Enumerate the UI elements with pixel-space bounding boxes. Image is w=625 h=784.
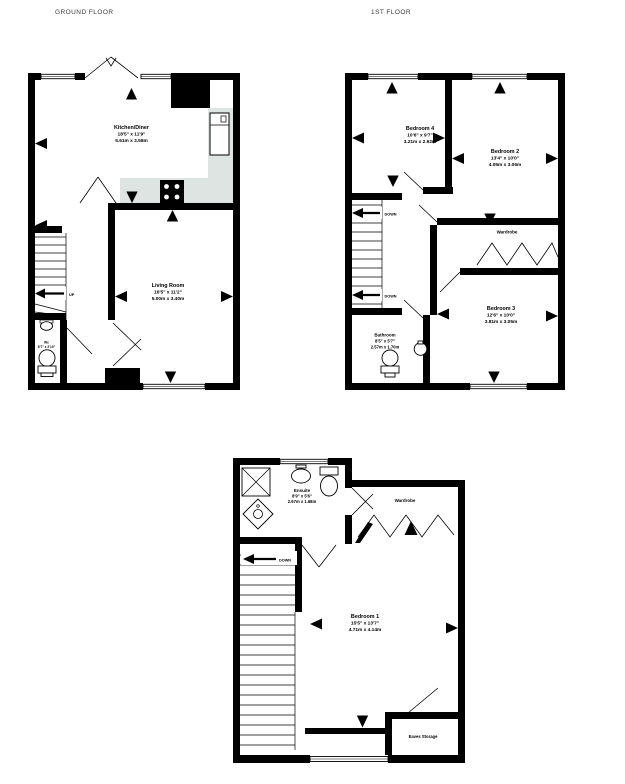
stairs: DOWN DOWN: [352, 200, 397, 308]
bedroom3-dims-m: 3.81m x 3.05m: [485, 319, 518, 325]
window: [41, 73, 75, 80]
window: [141, 73, 171, 80]
bedroom1-label: Bedroom 1: [351, 614, 379, 620]
dimension-arrow-down: [488, 372, 499, 384]
ensuite-fixtures: [242, 465, 338, 529]
dimension-arrows-second: [310, 521, 458, 728]
dimension-arrow-down: [357, 716, 368, 728]
stairs-down-label: DOWN: [279, 558, 291, 562]
dimension-arrow-right: [546, 153, 558, 164]
wc-room: Wc 6'7" x 2'10": [38, 320, 56, 377]
dimension-arrow-right: [221, 291, 233, 302]
dimension-arrow-right: [446, 623, 458, 634]
dimension-arrow-left: [115, 291, 127, 302]
door-leaf-icon: [355, 522, 373, 543]
ensuite-dims-ft: 8'9" x 5'6": [292, 494, 312, 499]
bathroom-dims-ft: 8'5" x 5'7": [375, 339, 395, 344]
stairs-up-label: UP: [69, 293, 75, 297]
dimension-arrow-left: [352, 133, 364, 144]
window: [143, 383, 205, 390]
stairs-label-lower: DOWN: [385, 294, 397, 298]
bedroom2-label: Bedroom 2: [491, 149, 519, 155]
window: [310, 755, 388, 763]
wardrobe-rail: [477, 243, 558, 265]
first-floor-title: 1ST FLOOR: [371, 9, 411, 16]
ensuite-label: Ensuite: [294, 488, 311, 493]
first-floor-plan: DOWN DOWN: [345, 60, 565, 400]
living-room-label: Living Room: [152, 283, 185, 289]
dimension-arrow-left: [437, 309, 449, 320]
dimension-arrow-down: [387, 176, 398, 188]
ensuite-dims-m: 2.67m x 1.68m: [288, 499, 317, 504]
dimension-arrow-right: [546, 311, 558, 322]
bedroom3-dims-ft: 12'6" x 10'0": [487, 313, 515, 319]
kitchen-dims-ft: 18'5" x 11'9": [118, 132, 146, 138]
shower-icon: [242, 468, 270, 496]
second-walls: [233, 458, 465, 763]
vanity-sink-icon: [243, 499, 273, 529]
stairs: UP: [35, 233, 75, 320]
ground-floor-title: GROUND FLOOR: [55, 9, 114, 16]
bedroom4-dims-ft: 10'6" x 9'7": [407, 133, 433, 139]
dimension-arrow-up: [126, 88, 137, 100]
bedroom1-dims-m: 4.71m x 4.14m: [349, 627, 382, 633]
kitchen-dims-m: 5.61m x 3.58m: [115, 138, 148, 144]
toilet-icon: [381, 350, 399, 377]
toilet-icon: [38, 350, 56, 377]
dimension-arrow-up: [386, 82, 397, 94]
stairs: DOWN: [240, 551, 297, 750]
living-room-dims-ft: 16'5" x 11'2": [154, 290, 182, 296]
window: [470, 383, 527, 390]
floorplan-page: GROUND FLOOR 1ST FLOOR: [0, 0, 625, 784]
bedroom2-dims-m: 4.05m x 3.05m: [489, 162, 522, 168]
window: [368, 73, 418, 80]
bathroom-label: Bathroom: [374, 333, 395, 338]
basin-icon: [292, 465, 311, 483]
toilet-icon: [320, 467, 338, 496]
dimension-arrow-down: [165, 372, 176, 384]
bedroom4-dims-m: 3.21m x 2.92m: [404, 139, 437, 145]
window: [472, 73, 527, 80]
dimension-arrow-left: [35, 138, 47, 149]
bathroom-dims-m: 2.57m x 1.70m: [371, 345, 400, 350]
door-swing: [302, 488, 438, 713]
bedroom1-dims-ft: 15'5" x 13'7": [351, 621, 379, 627]
ground-floor-plan: UP Wc 6'7" x 2'10" Kitchen/Din: [28, 28, 243, 398]
stairs-label-upper: DOWN: [385, 212, 397, 216]
hob-icon: [160, 180, 184, 203]
dimension-arrow-left: [310, 619, 322, 630]
wc-dims-ft: 6'7" x 2'10": [38, 345, 56, 349]
bedroom4-label: Bedroom 4: [406, 126, 434, 132]
dimension-arrow-up: [494, 82, 505, 94]
bedroom3-label: Bedroom 3: [487, 306, 515, 312]
wardrobe-label: Wardrobe: [497, 230, 518, 235]
second-floor-plan: DOWN Ensuite 8'9" x 5'6" 2.67m x 1.68m W…: [233, 455, 465, 770]
wc-basin-icon: [41, 322, 53, 331]
window: [280, 458, 328, 465]
wardrobe-label: Wardrobe: [395, 498, 416, 503]
living-room-dims-m: 5.00m x 3.40m: [152, 296, 185, 302]
fridge-icon: [210, 113, 229, 155]
dimension-arrow-up: [167, 210, 178, 222]
bedroom2-dims-ft: 13'4" x 10'0": [491, 156, 519, 162]
dimension-arrow-left: [452, 153, 464, 164]
eaves-storage-label: Eaves Storage: [409, 734, 439, 739]
entrance-door-swing: [85, 57, 138, 78]
kitchen-label: Kitchen/Diner: [114, 125, 150, 131]
